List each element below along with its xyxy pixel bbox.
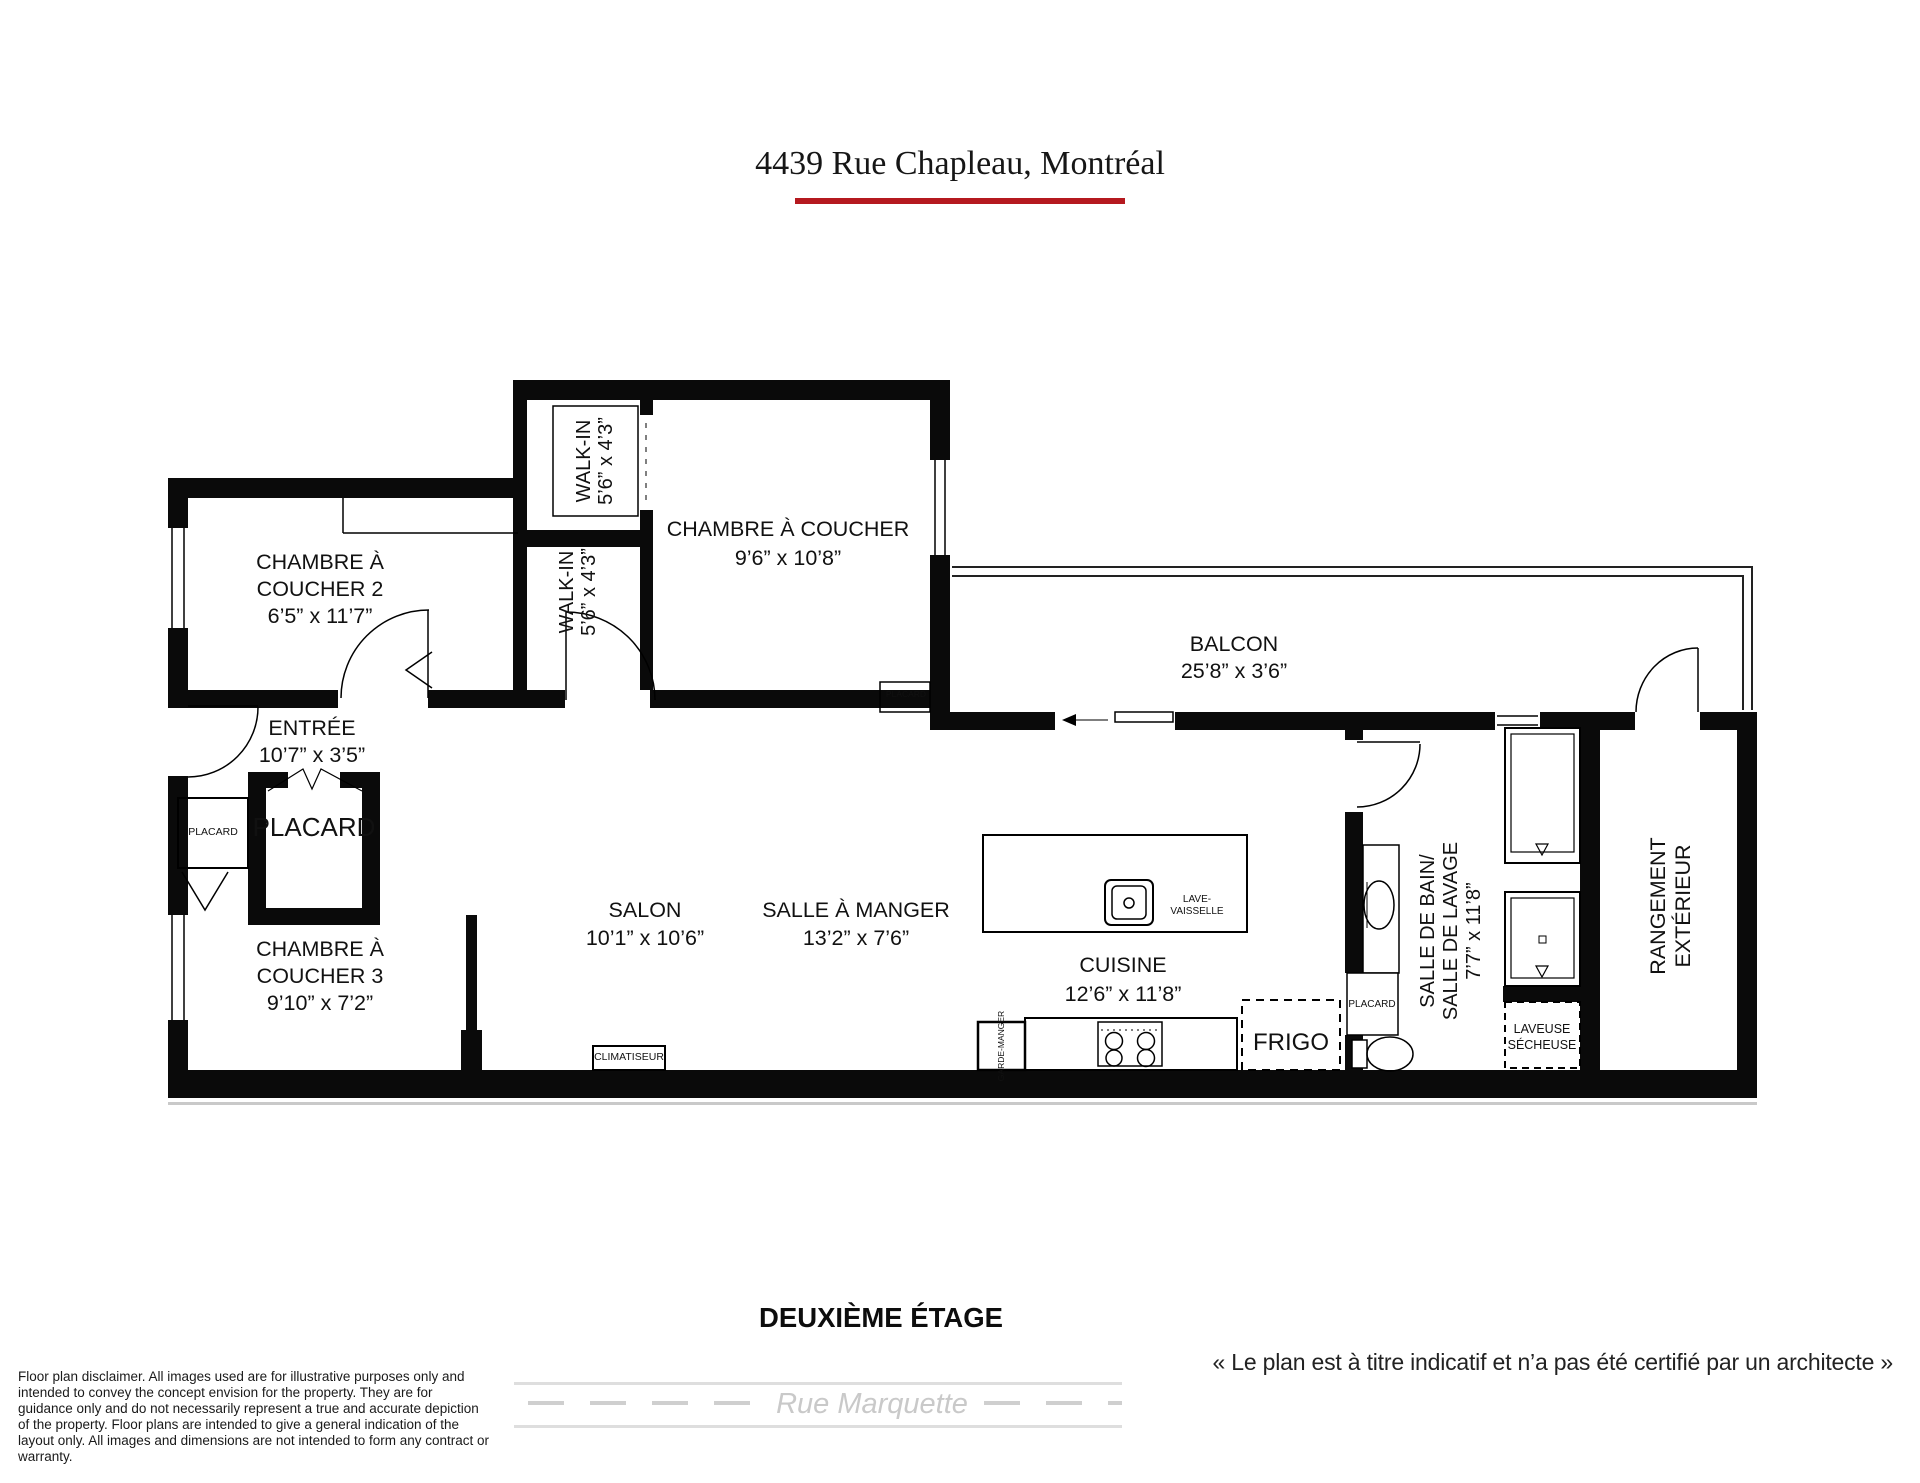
room-label-chambre2: CHAMBRE À COUCHER 2 6’5” x 11’7”: [256, 549, 384, 630]
label-frigo: FRIGO: [1253, 1029, 1329, 1057]
shower-1: [1505, 728, 1580, 863]
label-lave-vaisselle: LAVE- VAISSELLE: [1170, 894, 1223, 917]
patio-sliding-door: [1062, 712, 1173, 726]
label-placard-chambre: PLACARD: [886, 689, 926, 699]
page-title: 4439 Rue Chapleau, Montréal: [755, 145, 1165, 183]
street-name-label: Rue Marquette: [776, 1388, 968, 1421]
street-border-line-bottom: [514, 1425, 1122, 1428]
toilet-tank: [1352, 1040, 1367, 1068]
shower-2: [1505, 892, 1580, 986]
balcony-railing: [952, 567, 1752, 710]
label-placard-entree-grand: PLACARD: [253, 812, 376, 843]
stove: [1098, 1022, 1162, 1066]
label-placard-salle-de-bain: PLACARD: [1348, 999, 1395, 1010]
room-label-salle-de-bain: SALLE DE BAIN/ SALLE DE LAVAGE 7’7” x 11…: [1416, 806, 1486, 1056]
room-label-cuisine: CUISINE 12’6” x 11’8”: [1065, 951, 1182, 1009]
room-label-balcon: BALCON 25’8” x 3’6”: [1181, 631, 1287, 685]
architect-caption: « Le plan est à titre indicatif et n’a p…: [1212, 1349, 1893, 1376]
street-centerline-dashes-left: [528, 1401, 762, 1405]
label-placard-entree-petit: PLACARD: [188, 826, 238, 838]
toilet-bowl: [1367, 1037, 1413, 1071]
room-label-chambre3: CHAMBRE À COUCHER 3 9’10” x 7’2”: [256, 936, 384, 1017]
room-label-salon: SALON 10’1” x 10’6”: [586, 896, 704, 952]
title-underline: [795, 198, 1125, 204]
label-climatiseur: CLIMATISEUR: [594, 1051, 664, 1063]
kitchen-fixtures: [593, 835, 1340, 1070]
street-centerline-dashes-right: [984, 1401, 1122, 1405]
annotations: [178, 406, 930, 868]
floor-plan-page: 4439 Rue Chapleau, Montréal CHAMBRE À CO…: [0, 0, 1920, 1483]
street-border-line-top: [514, 1382, 1122, 1385]
disclaimer-text: Floor plan disclaimer. All images used a…: [18, 1369, 490, 1464]
room-label-rangement-exterieur: RANGEMENT EXTÉRIEUR: [1645, 806, 1697, 1006]
room-label-chambre-principale: CHAMBRE À COUCHER 9’6” x 10’8”: [667, 515, 910, 573]
label-laveuse-secheuse: LAVEUSE SÉCHEUSE: [1508, 1021, 1577, 1053]
room-label-salle-a-manger: SALLE À MANGER 13’2” x 7’6”: [762, 896, 950, 952]
label-garde-manger: GARDE-MANGER: [994, 986, 1008, 1106]
room-label-walkin-bas: WALK-IN 5’6” x 4’3”: [555, 512, 601, 672]
floor-level-label: DEUXIÈME ÉTAGE: [759, 1302, 1003, 1334]
room-label-entree: ENTRÉE 10’7” x 3’5”: [259, 715, 365, 769]
